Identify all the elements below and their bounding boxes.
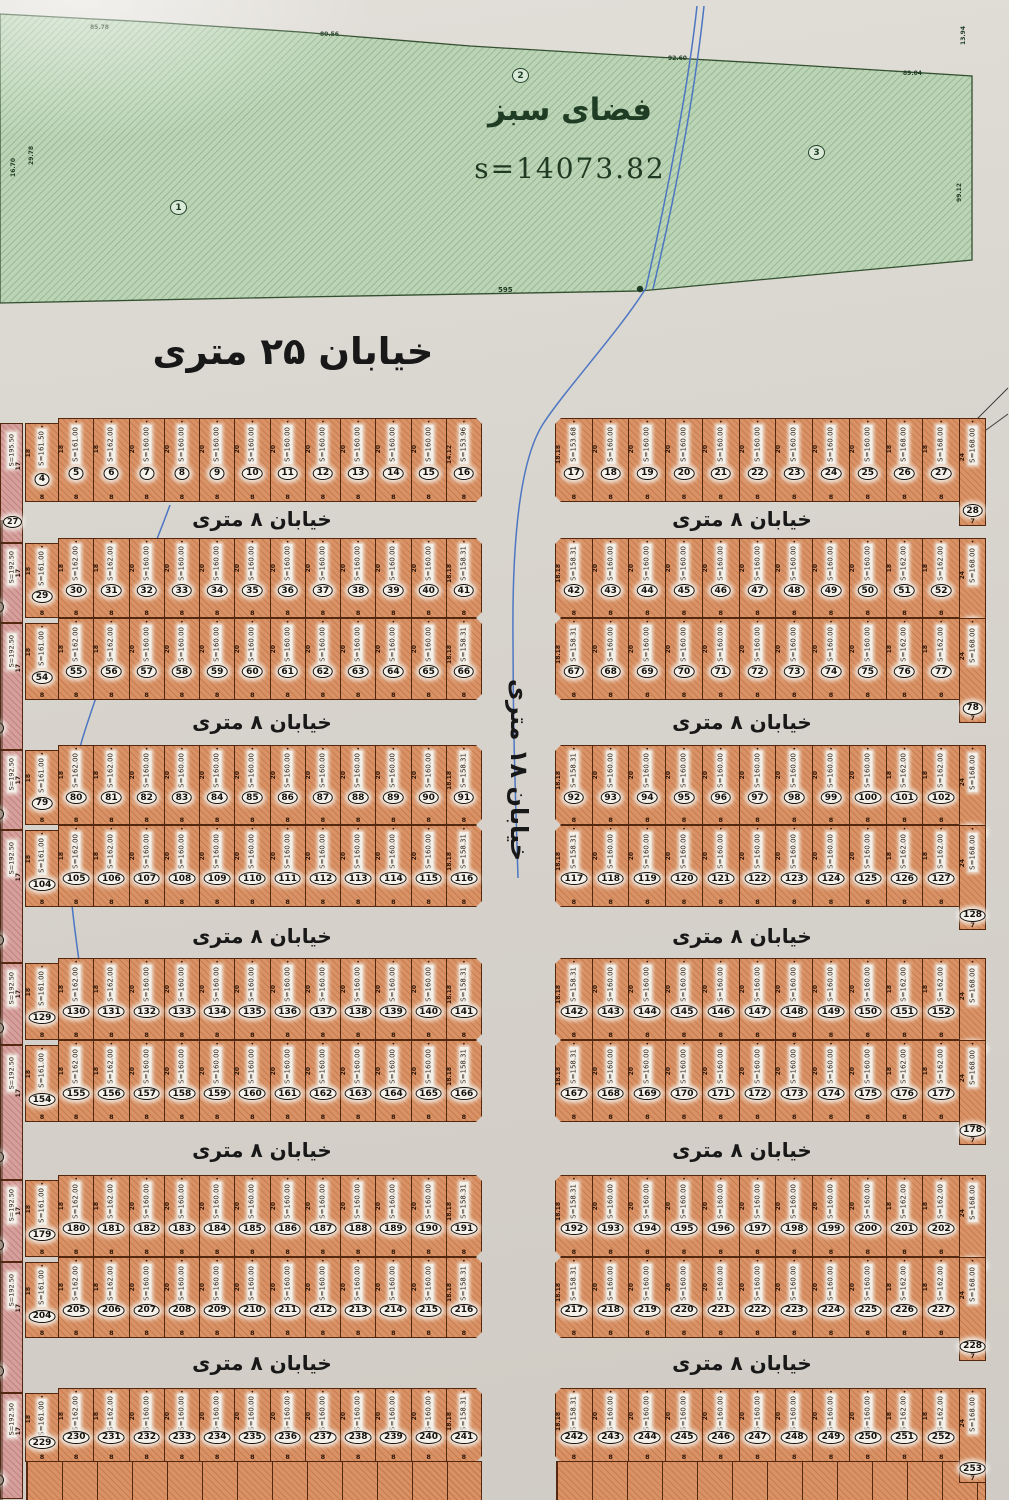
plot: S=160.0039208• [375,538,411,618]
plot-top-tick: • [145,1176,149,1183]
plot-number: 247 [744,1431,771,1444]
plot: S=160.00212208• [305,1257,341,1338]
plot-top-tick: • [321,539,325,546]
plot: S=160.0071208• [702,618,740,700]
plot: S=162.006188• [93,418,129,502]
plot: S=160.00172208• [739,1040,777,1122]
plot: S=160.007208• [129,418,165,502]
plot-area-value: S=160.00 [248,1264,257,1303]
plot-top-tick: • [145,619,149,626]
plot-frontage-dim: 8 [285,898,290,906]
plot-number: 154 [29,1093,56,1106]
plot-area-value: S=162.00 [900,1264,909,1303]
plot-side-dim: 20 [665,1283,672,1291]
plot-side-dim: 20 [411,771,418,779]
plot: S=162.00152188• [922,958,960,1040]
plot-frontage-dim: 8 [215,1453,220,1461]
plot-side-dim: 20 [234,445,241,453]
plot-side-dim: 20 [628,645,635,653]
plot-frontage-dim: 8 [462,493,467,501]
plot-frontage-dim: 8 [321,609,326,617]
plot-side-dim: 20 [849,985,856,993]
plot-frontage-dim: 8 [215,493,220,501]
plot: S=160.00171208• [702,1040,740,1122]
plot-number: 244 [634,1431,661,1444]
plot-side-dim: 20 [305,985,312,993]
left-block: S=161.504188•S=161.005188•S=162.006188•S… [26,418,482,502]
plot-side-dim: 20 [665,445,672,453]
plot-area-value: S=160.00 [863,1047,872,1086]
plot-number: 69 [637,665,658,678]
plot-frontage-dim: 8 [180,898,185,906]
plot-side-dim: 20 [849,1283,856,1291]
plot-number: 91 [454,791,475,804]
plot-side-dim: 18 [25,449,32,457]
plot: S=162.00131188• [93,958,129,1040]
plot-area-value: S=160.00 [354,1182,363,1221]
plot-number: 208 [168,1304,195,1317]
plot-side-dim: 18 [93,1067,100,1075]
plot-top-tick: • [356,1258,360,1265]
plot-side-dim: 18 [58,985,65,993]
plot-side-dim: 20 [234,1412,241,1420]
plot-area-value: S=160.00 [606,832,615,871]
plot-number: 58 [172,665,193,678]
plot-side-dim: 18 [25,1287,32,1295]
plot-top-tick: • [145,959,149,966]
plot-side-dim: 18 [93,1412,100,1420]
plot-area-value: S=160.00 [827,1047,836,1086]
plot-frontage-dim: 8 [939,1329,944,1337]
plot-frontage-dim: 8 [180,1113,185,1121]
plot-top-tick: • [572,619,576,626]
plot-side-dim: 20 [849,852,856,860]
plot-area-value: S=160.00 [177,751,186,790]
plot-side-dim: 20 [702,1283,709,1291]
plot-number: 73 [784,665,805,678]
plot-area-value: S=160.00 [424,544,433,583]
plot-area-value: S=160.00 [643,425,652,464]
plot: S=160.0094208• [628,745,666,825]
plot-number: 111 [274,872,301,885]
left-strip-plot: S=192.5017 [0,1262,23,1393]
plot-frontage-dim: 8 [426,1113,431,1121]
plot-side-dim: 20 [164,1067,171,1075]
plot-area-value: S=158.31 [569,965,578,1004]
plot-side-dim: 18 [58,1202,65,1210]
plot: S=168.0078247• [959,618,986,723]
plot-number: 231 [98,1431,125,1444]
street-label-8m: خیابان ۸ متری [192,924,332,948]
plot-top-tick: • [646,1389,650,1396]
plot: S=160.00161208• [270,1040,306,1122]
plot-side-dim: 18.18 [555,564,562,583]
plot-area-value: S=160.00 [863,1394,872,1433]
plot-frontage-dim: 8 [321,1031,326,1039]
plot-number: 249 [818,1431,845,1444]
plot-frontage-dim: 8 [40,1453,45,1461]
plot-area-value: S=153.68 [569,425,578,464]
plot-frontage-dim: 8 [356,1453,361,1461]
left-block: S=161.0079188•S=162.0080188•S=162.008118… [26,745,482,825]
plot-top-tick: • [462,959,466,966]
plot-top-tick: • [356,1176,360,1183]
left-block: S=161.00204188•S=162.00205188•S=162.0020… [26,1257,482,1338]
plot: S=162.0081188• [93,745,129,825]
plot: S=160.00187208• [305,1175,341,1257]
plot-frontage-dim: 8 [865,816,870,824]
plot-frontage-dim: 8 [572,1453,577,1461]
plot: S=160.00184208• [199,1175,235,1257]
plot-number: 148 [781,1005,808,1018]
plot: S=160.0090208• [411,745,447,825]
plot-top-tick: • [321,959,325,966]
plot-number: 63 [348,665,369,678]
plot-side-dim: 20 [129,1202,136,1210]
plot-number: 182 [133,1222,160,1235]
plot-side-dim: 20 [411,445,418,453]
plot-top-tick: • [646,539,650,546]
plot-number: 122 [744,872,771,885]
plot-area-value: S=162.00 [72,1264,81,1303]
plot-area-value: S=160.00 [753,1394,762,1433]
plot-top-tick: • [609,1041,613,1048]
plot-top-tick: • [719,539,723,546]
plot-number: 61 [277,665,298,678]
plot-frontage-dim: 8 [608,1113,613,1121]
plot-number: 177 [928,1087,955,1100]
right-block: S=158.316718.188•S=160.0068208•S=160.006… [556,618,986,700]
plot-side-dim: 20 [270,564,277,572]
plot-number: 215 [415,1304,442,1317]
plot-area-value: S=160.00 [213,1182,222,1221]
plot-top-tick: • [609,1258,613,1265]
plot-side-dim: 20 [812,985,819,993]
plot-top-tick: • [356,959,360,966]
plot-top-tick: • [74,746,78,753]
plot-area-value: S=162.00 [107,1264,116,1303]
plot: S=160.0035208• [234,538,270,618]
left-strip-plot: S=192.5017 [0,1045,23,1180]
plot: S=160.00146208• [702,958,740,1040]
plot-area-value: S=160.00 [716,1047,725,1086]
plot-area-value: S=160.00 [643,832,652,871]
plot-number: 19 [637,467,658,480]
plot-number: 20 [674,467,695,480]
plot: S=160.00157208• [129,1040,165,1122]
plot: S=160.0034208• [199,538,235,618]
plot-side-dim: 20 [702,564,709,572]
plot: S=160.0047208• [739,538,777,618]
plot-frontage-dim: 8 [180,1329,185,1337]
plot-top-tick: • [462,1176,466,1183]
plot-top-tick: • [719,826,723,833]
plot-top-tick: • [40,1046,44,1053]
plot-number: 127 [928,872,955,885]
plot-area-value: S=160.00 [389,1264,398,1303]
plot-side-dim: 20 [849,1067,856,1075]
plot-top-tick: • [866,539,870,546]
plot-side-dim: 20 [812,771,819,779]
plot-frontage-dim: 8 [356,691,361,699]
plot-area-value: S=160.00 [318,544,327,583]
survey-dim: 29.78 [28,146,35,165]
plot-area-value: S=168.00 [968,1183,977,1222]
plot-frontage-dim: 8 [682,691,687,699]
plot: S=158.3121718.188• [555,1257,593,1338]
plot: S=160.00208208• [164,1257,200,1338]
plot-area-value: S=160.00 [790,625,799,664]
left-strip-plot: S=192.5017 [0,750,23,830]
plot-top-tick: • [756,1389,760,1396]
plot-side-dim: 20 [775,771,782,779]
plot-number: 196 [707,1222,734,1235]
plot-number: 130 [63,1005,90,1018]
plot: S=161.00179188• [25,1180,59,1257]
plot-area-value: S=160.00 [606,1264,615,1303]
plot: S=160.0038208• [340,538,376,618]
plot-side-dim: 20 [775,1412,782,1420]
right-block: S=158.3116718.188•S=160.00168208•S=160.0… [556,1040,986,1122]
plot-side-dim: 24 [959,1074,966,1082]
plot-area-value: S=160.00 [643,1264,652,1303]
plot-area-value: S=160.00 [283,1264,292,1303]
plot-frontage-dim: 8 [144,609,149,617]
plot: S=160.00248208• [775,1388,813,1462]
plot: S=162.0080188• [58,745,94,825]
plot-frontage-dim: 8 [462,1113,467,1121]
plot-top-tick: • [180,1176,184,1183]
plot-frontage-dim: 8 [939,609,944,617]
plot-area-value: S=160.00 [680,425,689,464]
plot-area-value: S=160.00 [680,965,689,1004]
plot-number: 183 [168,1222,195,1235]
plot: S=160.0044208• [628,538,666,618]
plot-top-tick: • [215,959,219,966]
plot: S=160.00111208• [270,825,306,907]
plot-top-tick: • [74,539,78,546]
plot: S=160.00215208• [411,1257,447,1338]
plot-side-dim: 20 [164,1412,171,1420]
plot: S=160.00136208• [270,958,306,1040]
plot: S=160.00210208• [234,1257,270,1338]
plot-top-tick: • [392,1258,396,1265]
plot-frontage-dim: 8 [792,493,797,501]
plot-frontage-dim: 8 [645,816,650,824]
street-label-8m: خیابان ۸ متری [672,1351,812,1375]
plot-frontage-dim: 8 [250,493,255,501]
plot-frontage-dim: 8 [682,898,687,906]
plot-number: 176 [891,1087,918,1100]
survey-dim: 13.94 [960,26,967,45]
plot-area-value: S=160.00 [827,1394,836,1433]
plot-area-value: S=168.00 [968,833,977,872]
plot-top-tick: • [829,1041,833,1048]
plot: S=161.00104188• [25,830,59,907]
plot-number: 79 [32,797,53,810]
plot-frontage-dim: 8 [426,691,431,699]
plot-row: S=161.00179188•S=162.00180188•S=162.0018… [26,1175,986,1257]
plot-number: 107 [133,872,160,885]
plot-number: 98 [784,791,805,804]
plot-area-value: S=162.00 [937,832,946,871]
plot-number: 190 [415,1222,442,1235]
plot-area-value: S=161.00 [38,1051,47,1090]
plot-top-tick: • [356,1389,360,1396]
plot: S=160.00140208• [411,958,447,1040]
plot-frontage-dim: 8 [74,1248,79,1256]
plot-top-tick: • [251,1041,255,1048]
plot-top-tick: • [682,619,686,626]
plot-area-value: S=160.00 [790,832,799,871]
plot-number: 52 [931,584,952,597]
plot-frontage-dim: 8 [391,1329,396,1337]
plot: S=160.00160208• [234,1040,270,1122]
plot-top-tick: • [971,746,975,753]
plot-area-value: S=160.00 [213,965,222,1004]
plot: S=160.00121208• [702,825,740,907]
plot-number: 112 [309,872,336,885]
plot-number: 181 [98,1222,125,1235]
plot-frontage-dim: 8 [939,816,944,824]
right-block: S=158.3111718.188•S=160.00118208•S=160.0… [556,825,986,907]
plot-frontage-dim: 8 [462,1248,467,1256]
plot-number: 8 [174,467,189,480]
plot-number: 233 [168,1431,195,1444]
plot-frontage-dim: 8 [572,816,577,824]
plot-frontage-dim: 8 [356,1031,361,1039]
plot-top-tick: • [829,619,833,626]
plot-top-tick: • [427,1258,431,1265]
plot-area-value: S=162.00 [72,751,81,790]
plot: S=160.00165208• [411,1040,447,1122]
plot: S=162.00202188• [922,1175,960,1257]
plot-area-value: S=162.00 [107,832,116,871]
plot-area-value: S=160.00 [318,1394,327,1433]
plot-top-tick: • [110,619,114,626]
plot-frontage-dim: 8 [902,493,907,501]
plot-area-value: S=192.50 [7,1272,16,1308]
plot-side-dim: 20 [375,564,382,572]
plot-frontage-dim: 8 [250,1113,255,1121]
plot-top-tick: • [286,826,290,833]
plot: S=160.00138208• [340,958,376,1040]
plot-top-tick: • [572,1041,576,1048]
plot: S=160.0059208• [199,618,235,700]
plot-area-value: S=160.00 [424,1182,433,1221]
plot: S=160.0082208• [129,745,165,825]
plot-side-dim: 18.18 [555,445,562,464]
plot-number: 60 [242,665,263,678]
plot-number: 123 [781,872,808,885]
plot: S=160.00135208• [234,958,270,1040]
plot-area-value: S=160.00 [248,965,257,1004]
plot: S=158.3114118.188• [446,958,482,1040]
plot-side-dim: 20 [375,1067,382,1075]
plot-frontage-dim: 8 [144,493,149,501]
plot-frontage-dim: 8 [109,691,114,699]
plot-area-value: S=160.00 [177,625,186,664]
plot-area-value: S=160.00 [177,1264,186,1303]
plot-area-value: S=160.00 [142,832,151,871]
plot-number: 72 [747,665,768,678]
plot: S=160.00237208• [305,1388,341,1462]
plot-number: 210 [239,1304,266,1317]
plot-top-tick: • [866,959,870,966]
plot-top-tick: • [719,1389,723,1396]
plot-frontage-dim: 7 [970,921,975,929]
plot-area-value: S=160.00 [142,425,151,464]
plot-area-value: S=160.00 [283,751,292,790]
plot-top-tick: • [719,419,723,426]
plot-top-tick: • [646,959,650,966]
plot-side-dim: 18 [886,564,893,572]
plot-side-dim: 20 [234,1202,241,1210]
plot-area-value: S=162.00 [107,425,116,464]
plot-number: 29 [32,590,53,603]
plot-top-tick: • [427,1041,431,1048]
plot: S=162.0052188• [922,538,960,618]
plot-frontage-dim: 8 [608,493,613,501]
survey-dim: 16.70 [10,158,17,177]
plot-frontage-dim: 8 [285,609,290,617]
plot-area-value: S=168.00 [968,546,977,585]
plot-frontage-dim: 8 [755,1329,760,1337]
plot-frontage-dim: 8 [939,691,944,699]
plot: S=162.00180188• [58,1175,94,1257]
plot-side-dim: 20 [812,1202,819,1210]
plot-number: 7 [139,467,154,480]
plot-side-dim: 20 [702,445,709,453]
plot-top-tick: • [719,619,723,626]
plot-side-dim: 20 [812,852,819,860]
plot-frontage-dim: 8 [719,898,724,906]
plot-area-value: S=160.00 [142,625,151,664]
plot-area-value: S=160.00 [606,544,615,583]
plot: S=160.00220208• [665,1257,703,1338]
plot: S=160.00147208• [739,958,777,1040]
plot-side-dim: 18 [58,645,65,653]
plot-side-dim: 20 [775,445,782,453]
plot-number: 171 [707,1087,734,1100]
plot-frontage-dim: 8 [285,691,290,699]
plot-number: 226 [891,1304,918,1317]
plot-top-tick: • [903,1258,907,1265]
plot: S=162.00252188• [922,1388,960,1462]
street-label-8m: خیابان ۸ متری [672,1138,812,1162]
plot-side-dim: 17 [15,1089,22,1097]
plot-number: 161 [274,1087,301,1100]
right-block: S=158.3119218.188•S=160.00193208•S=160.0… [556,1175,986,1257]
plot-top-tick: • [251,539,255,546]
plot-number: 80 [66,791,87,804]
plot-area-value: S=160.00 [643,1182,652,1221]
plot-number: 42 [564,584,585,597]
plot-top-tick: • [110,539,114,546]
plot-number: 129 [29,1011,56,1024]
plot-top-tick: • [866,1389,870,1396]
plot: S=168.00178247• [959,1040,986,1145]
plot-side-dim: 18 [922,1412,929,1420]
plot-side-dim: 20 [199,771,206,779]
plot-frontage-dim: 8 [321,898,326,906]
plot-frontage-dim: 8 [792,1031,797,1039]
plot-side-dim: 20 [411,1202,418,1210]
plot-frontage-dim: 8 [829,898,834,906]
plot-frontage-dim: 8 [755,898,760,906]
plot-area-value: S=160.00 [680,751,689,790]
plot-frontage-dim: 8 [215,691,220,699]
